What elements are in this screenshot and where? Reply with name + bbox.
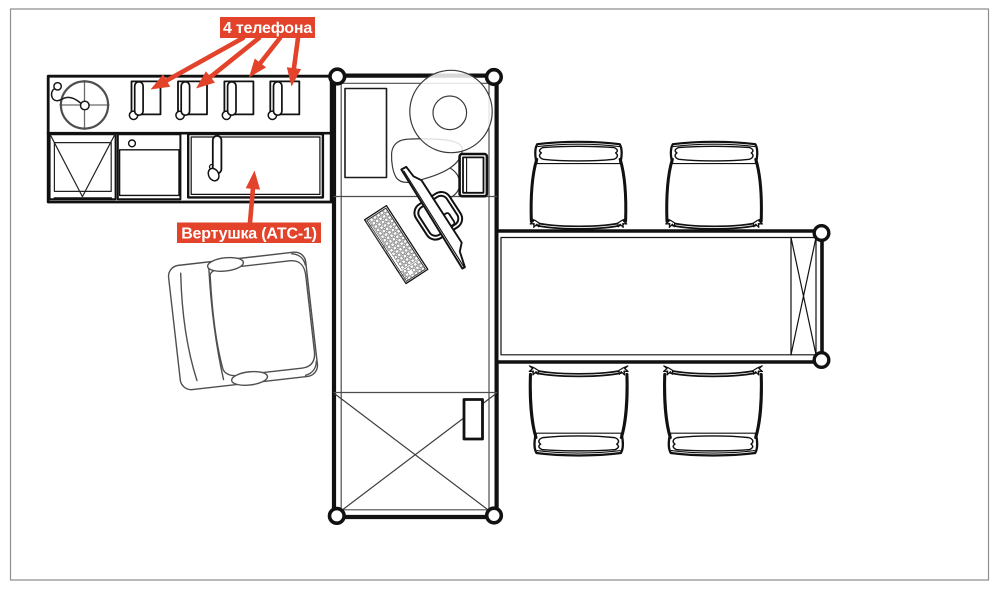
- svg-text:Вертушка (АТС-1): Вертушка (АТС-1): [181, 226, 317, 243]
- svg-text:4 телефона: 4 телефона: [223, 20, 312, 37]
